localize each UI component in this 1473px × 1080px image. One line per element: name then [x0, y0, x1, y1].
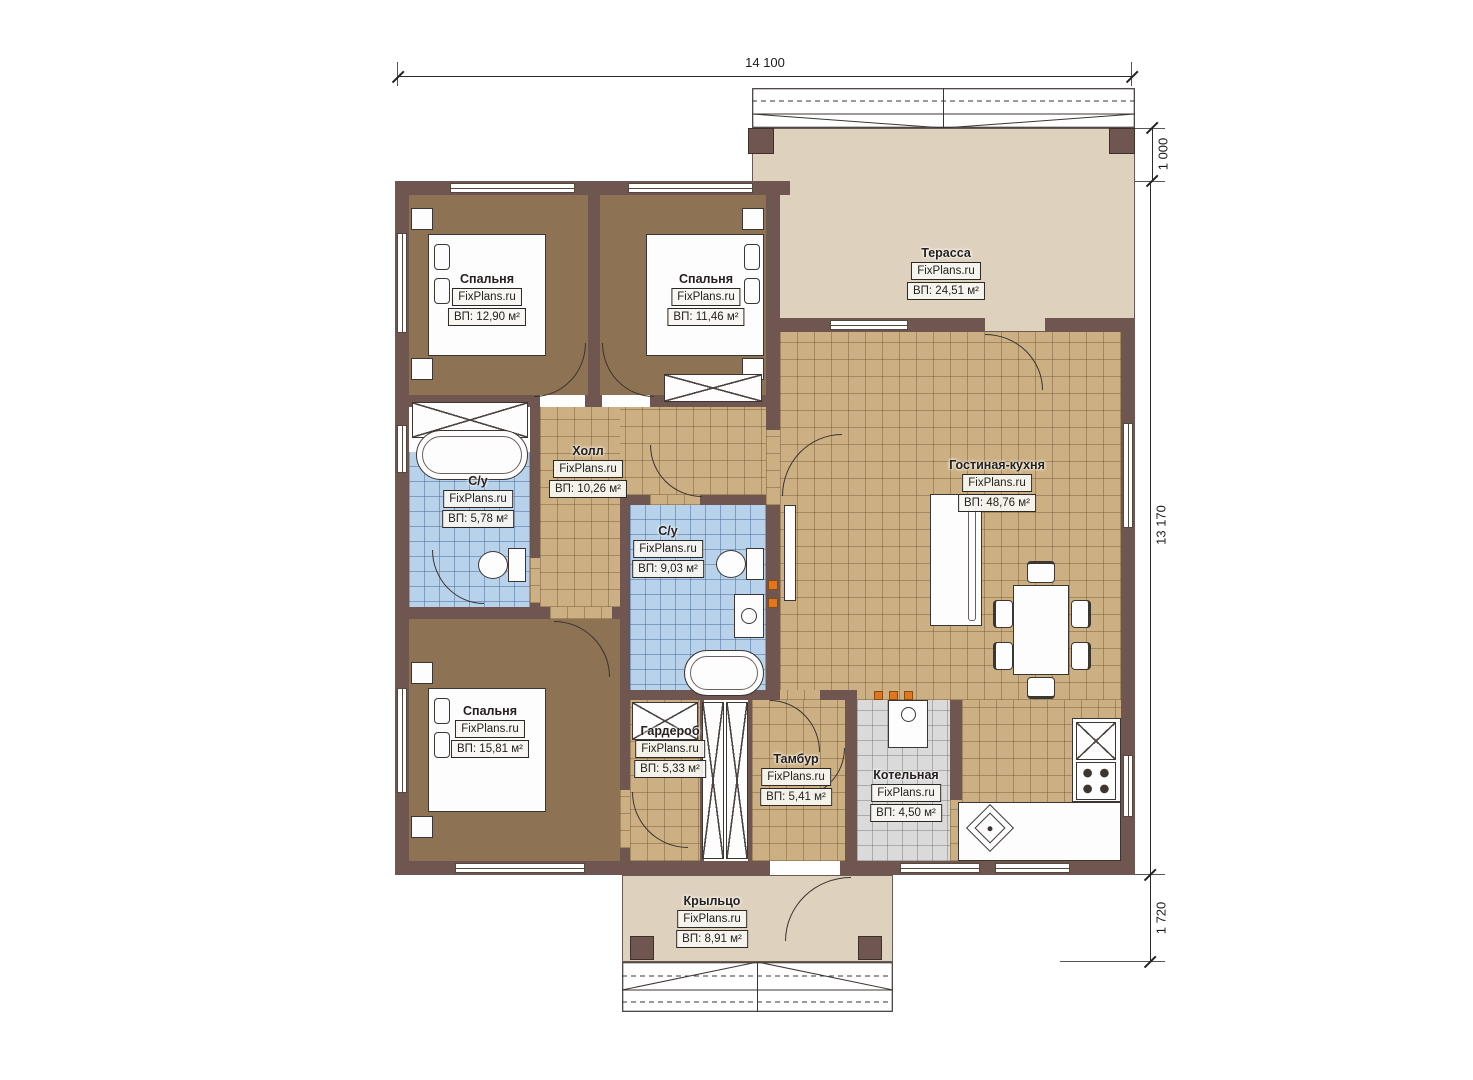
porch-steps — [622, 962, 893, 1012]
bathtub — [684, 650, 764, 696]
watermark: FixPlans.ru — [962, 474, 1032, 492]
window — [900, 863, 980, 873]
watermark: FixPlans.ru — [455, 720, 525, 738]
terrace-deck — [752, 128, 1135, 332]
room-name: С/у — [468, 474, 487, 488]
terrace-post — [1109, 128, 1135, 154]
window — [397, 688, 407, 793]
watermark: FixPlans.ru — [677, 910, 747, 928]
porch-post — [630, 936, 654, 960]
dimension-value-top: 14 100 — [745, 55, 785, 70]
pillow — [434, 698, 450, 724]
floor-doorway — [530, 558, 540, 603]
room-name: Спальня — [460, 272, 514, 286]
room-name: Терасса — [921, 246, 971, 260]
room-area: ВП: 5,41 м² — [760, 788, 832, 806]
floor-plan: Спальня FixPlans.ru ВП: 12,90 м² Спальня… — [0, 0, 1473, 1080]
room-name: Гостиная-кухня — [949, 458, 1045, 472]
floor-doorway — [550, 607, 612, 619]
wall-light — [889, 691, 898, 700]
room-area: ВП: 10,26 м² — [549, 480, 627, 498]
window — [397, 425, 407, 473]
window — [1123, 423, 1133, 528]
boiler-unit — [888, 700, 928, 748]
wall — [530, 407, 540, 558]
watermark: FixPlans.ru — [671, 288, 741, 306]
nightstand — [411, 208, 433, 230]
nightstand — [411, 662, 433, 684]
wall — [820, 690, 857, 700]
fridge — [1076, 722, 1116, 760]
chair — [1071, 642, 1091, 670]
dimension-line-height — [1150, 181, 1151, 875]
window — [455, 863, 585, 873]
watermark: FixPlans.ru — [871, 784, 941, 802]
wall — [840, 861, 1135, 875]
room-name: Спальня — [679, 272, 733, 286]
room-label-porch: Крыльцо FixPlans.ru ВП: 8,91 м² — [676, 894, 748, 948]
sofa — [930, 494, 982, 626]
wall-light — [904, 691, 913, 700]
wall — [620, 495, 630, 700]
nightstand — [742, 208, 764, 230]
room-area: ВП: 5,33 м² — [634, 760, 706, 778]
room-name: Котельная — [873, 768, 938, 782]
room-area: ВП: 48,76 м² — [958, 494, 1036, 512]
window — [628, 183, 753, 193]
room-name: Гардероб — [640, 724, 699, 738]
wall — [766, 332, 780, 430]
closet-panel — [726, 702, 748, 859]
floor-doorway — [766, 430, 780, 505]
watermark: FixPlans.ru — [635, 740, 705, 758]
pillow — [744, 244, 760, 270]
watermark: FixPlans.ru — [553, 460, 623, 478]
room-label-bedroom3: Спальня FixPlans.ru ВП: 15,81 м² — [451, 704, 529, 758]
wall — [748, 700, 752, 861]
pillow — [434, 244, 450, 270]
wall — [585, 395, 602, 407]
wall-light — [874, 691, 883, 700]
room-label-bath-main: С/у FixPlans.ru ВП: 9,03 м² — [632, 524, 704, 578]
toilet-bowl — [716, 550, 746, 578]
room-area: ВП: 8,91 м² — [676, 930, 748, 948]
stove — [1076, 762, 1116, 800]
window — [995, 863, 1070, 873]
wall — [409, 607, 550, 619]
room-area: ВП: 11,46 м² — [667, 308, 744, 326]
dimension-line-terrace — [1152, 128, 1153, 181]
toilet-tank — [746, 548, 764, 580]
room-label-living-kitchen: Гостиная-кухня FixPlans.ru ВП: 48,76 м² — [949, 458, 1045, 512]
terrace-steps — [752, 88, 1135, 128]
room-name: Холл — [572, 444, 603, 458]
chair — [993, 600, 1013, 628]
window — [1123, 755, 1133, 817]
wall — [700, 495, 766, 505]
wall-light — [768, 598, 778, 608]
wall — [766, 181, 780, 318]
room-label-hall: Холл FixPlans.ru ВП: 10,26 м² — [549, 444, 627, 498]
room-area: ВП: 9,03 м² — [632, 560, 704, 578]
wall — [588, 181, 600, 407]
room-floor-hall-corridor — [540, 407, 620, 607]
chair — [993, 642, 1013, 670]
washing-machine — [734, 594, 764, 638]
floor-doorway — [620, 790, 630, 848]
room-name: Крыльцо — [684, 894, 741, 908]
watermark: FixPlans.ru — [911, 262, 981, 280]
room-label-bath-small: С/у FixPlans.ru ВП: 5,78 м² — [442, 474, 514, 528]
room-area: ВП: 4,50 м² — [870, 804, 942, 822]
pillow — [434, 732, 450, 758]
room-label-wardrobe: Гардероб FixPlans.ru ВП: 5,33 м² — [634, 724, 706, 778]
wall-light — [768, 580, 778, 590]
chair — [1027, 677, 1055, 699]
dimension-line-top — [398, 76, 1132, 77]
porch-deck — [622, 875, 893, 962]
watermark: FixPlans.ru — [761, 768, 831, 786]
chair — [1071, 600, 1091, 628]
watermark: FixPlans.ru — [452, 288, 522, 306]
floor-doorway — [650, 495, 700, 505]
room-name: Спальня — [463, 704, 517, 718]
window — [450, 183, 575, 193]
closet — [664, 374, 762, 402]
window — [397, 233, 407, 333]
nightstand — [411, 358, 433, 380]
room-label-bedroom2: Спальня FixPlans.ru ВП: 11,46 м² — [667, 272, 744, 326]
window — [830, 320, 908, 330]
room-name: С/у — [658, 524, 677, 538]
watermark: FixPlans.ru — [633, 540, 703, 558]
room-area: ВП: 12,90 м² — [448, 308, 526, 326]
room-label-terrace: Терасса FixPlans.ru ВП: 24,51 м² — [907, 246, 985, 300]
room-label-vestibule: Тамбур FixPlans.ru ВП: 5,41 м² — [760, 752, 832, 806]
porch-post — [858, 936, 882, 960]
room-name: Тамбур — [773, 752, 818, 766]
chair — [1027, 561, 1055, 583]
tv-stand — [784, 505, 796, 601]
terrace-post — [748, 128, 774, 154]
room-area: ВП: 5,78 м² — [442, 510, 514, 528]
watermark: FixPlans.ru — [443, 490, 513, 508]
bathtub — [416, 430, 528, 480]
room-label-bedroom1: Спальня FixPlans.ru ВП: 12,90 м² — [448, 272, 526, 326]
dining-table — [1013, 585, 1069, 675]
toilet-tank — [508, 548, 526, 582]
wall — [845, 700, 857, 861]
room-area: ВП: 24,51 м² — [907, 282, 985, 300]
pillow — [744, 278, 760, 304]
wall — [950, 700, 962, 800]
dimension-line-porch — [1150, 875, 1151, 962]
wall — [620, 848, 630, 861]
room-label-boiler: Котельная FixPlans.ru ВП: 4,50 м² — [870, 768, 942, 822]
room-area: ВП: 15,81 м² — [451, 740, 529, 758]
wall — [1045, 318, 1135, 332]
nightstand — [411, 816, 433, 838]
